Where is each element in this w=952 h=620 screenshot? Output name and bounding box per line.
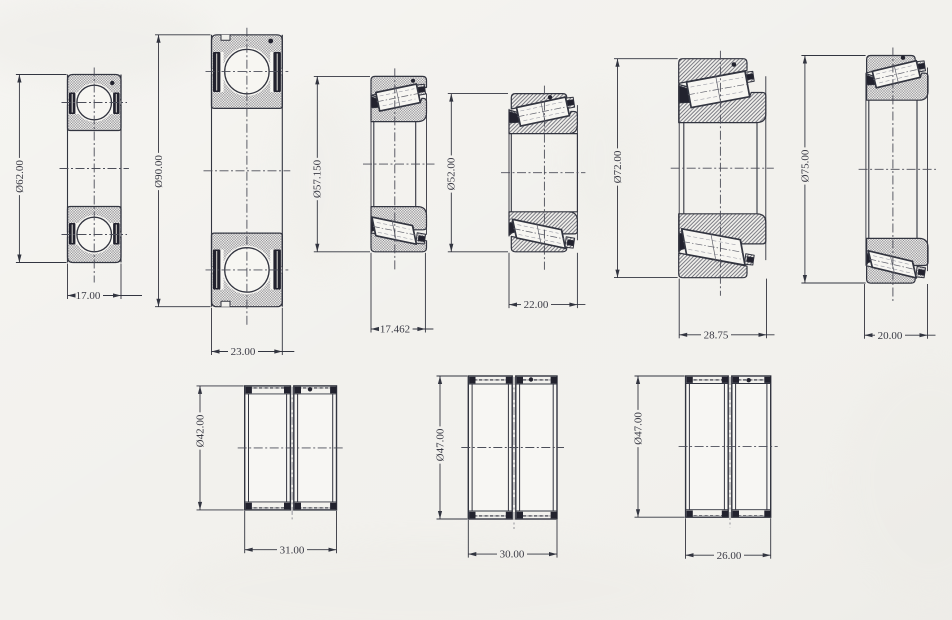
svg-text:Ø57.150: Ø57.150 [312,159,324,198]
svg-text:30.00: 30.00 [500,549,525,561]
svg-text:26.00: 26.00 [717,550,742,562]
svg-text:Ø47.00: Ø47.00 [434,428,446,461]
svg-text:Ø75.00: Ø75.00 [799,149,811,182]
svg-text:17.462: 17.462 [380,324,410,336]
svg-text:Ø90.00: Ø90.00 [153,155,165,188]
svg-text:22.00: 22.00 [524,299,549,311]
svg-text:23.00: 23.00 [231,346,256,358]
svg-text:28.75: 28.75 [704,329,729,341]
svg-text:17.00: 17.00 [76,290,101,302]
svg-text:Ø62.00: Ø62.00 [14,160,26,193]
svg-text:31.00: 31.00 [280,544,305,556]
svg-text:Ø52.00: Ø52.00 [446,157,458,190]
svg-text:Ø47.00: Ø47.00 [632,412,644,445]
svg-text:Ø42.00: Ø42.00 [194,414,206,447]
svg-text:20.00: 20.00 [878,330,903,342]
svg-text:Ø72.00: Ø72.00 [612,150,624,183]
